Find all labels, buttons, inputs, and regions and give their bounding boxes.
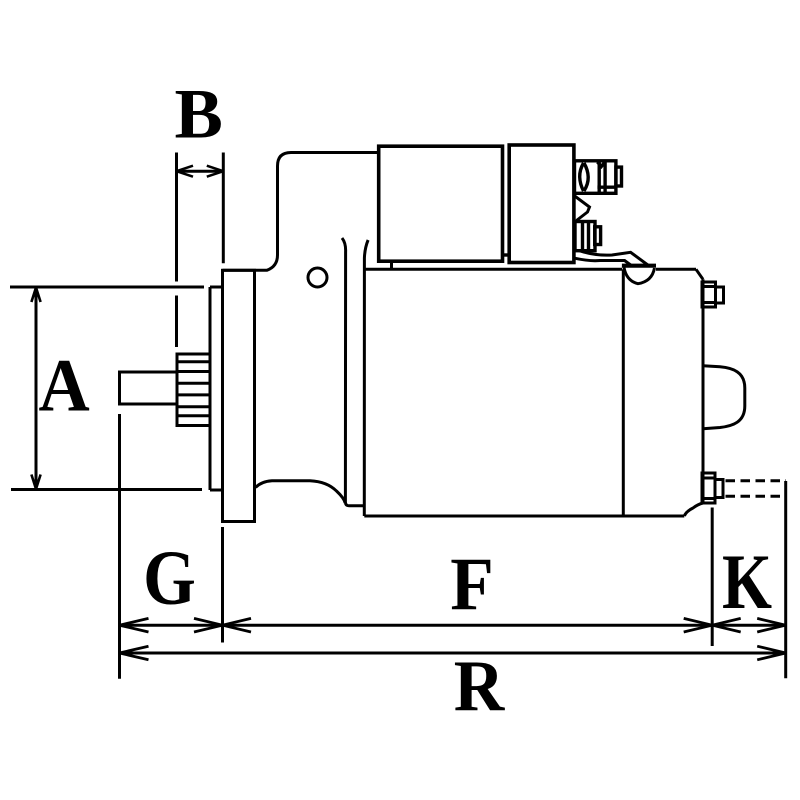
svg-text:G: G [143,534,196,621]
svg-text:K: K [722,538,772,625]
svg-text:F: F [450,543,494,626]
svg-text:A: A [39,344,90,427]
svg-text:B: B [175,76,223,154]
svg-text:R: R [454,646,506,727]
